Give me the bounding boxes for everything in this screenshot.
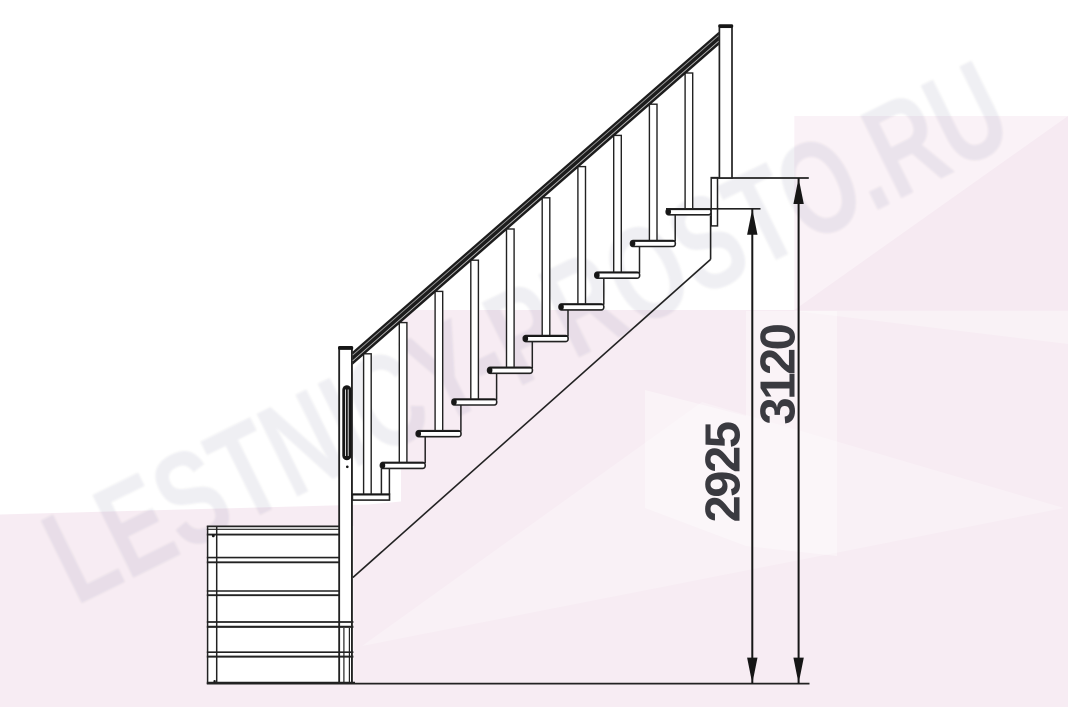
svg-text:2925: 2925 xyxy=(697,422,751,522)
svg-text:3120: 3120 xyxy=(751,324,805,424)
